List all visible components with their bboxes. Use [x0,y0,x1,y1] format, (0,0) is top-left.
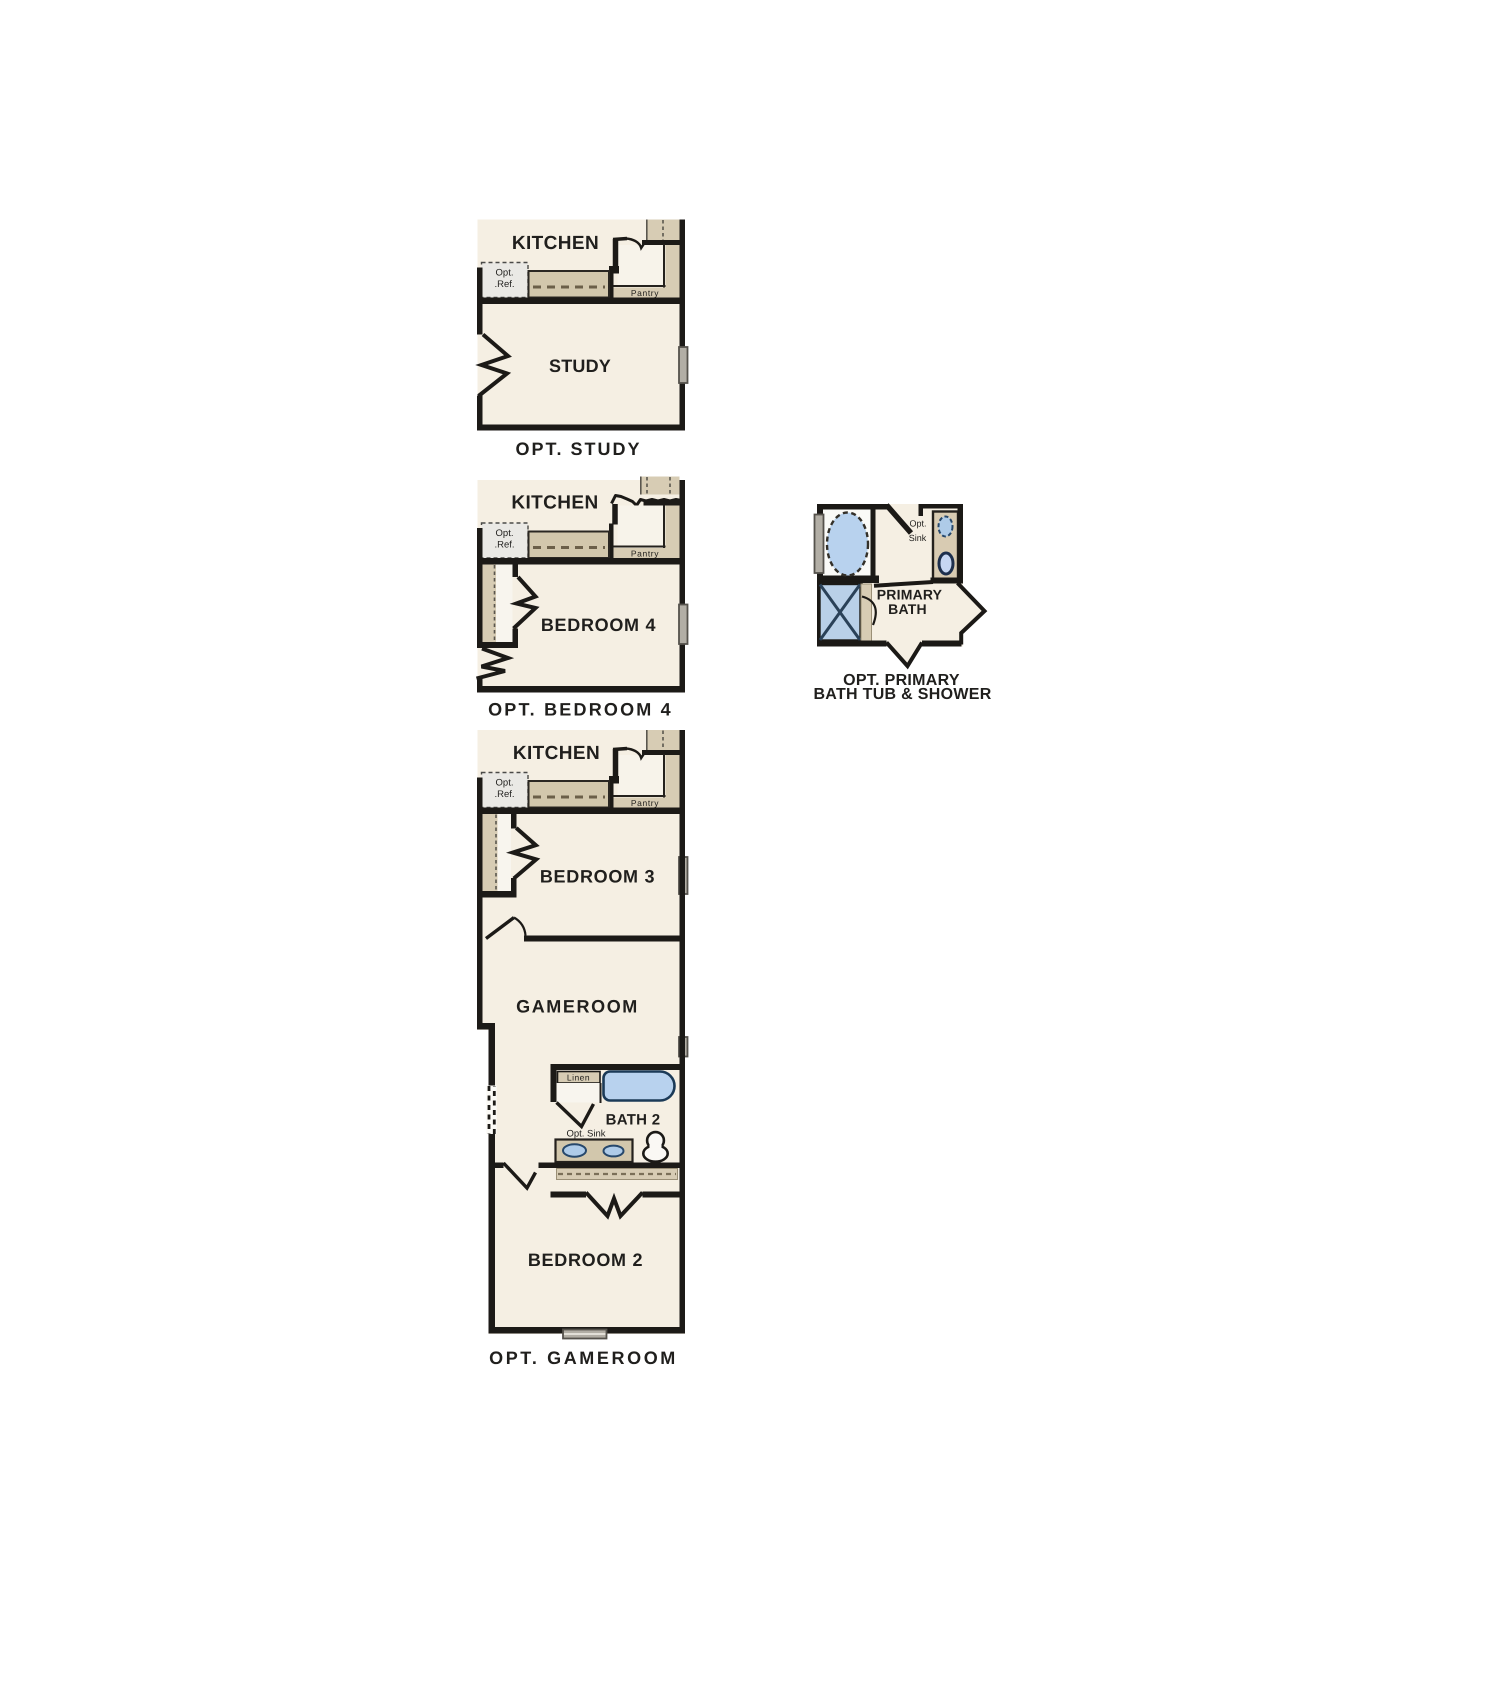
svg-text:BATH TUB & SHOWER: BATH TUB & SHOWER [813,686,991,703]
svg-text:KITCHEN: KITCHEN [511,493,598,514]
svg-text:Opt. Sink: Opt. Sink [566,1128,605,1139]
svg-text:.Ref.: .Ref. [494,279,514,290]
svg-text:KITCHEN: KITCHEN [513,743,600,764]
svg-text:BEDROOM 2: BEDROOM 2 [528,1250,643,1270]
svg-text:BATH: BATH [888,601,927,617]
svg-text:.Ref.: .Ref. [494,789,514,800]
svg-text:OPT. STUDY: OPT. STUDY [515,439,641,459]
svg-text:BEDROOM 3: BEDROOM 3 [540,867,655,887]
svg-text:OPT. GAMEROOM: OPT. GAMEROOM [489,1348,678,1368]
svg-text:Opt.: Opt. [496,528,514,539]
svg-text:GAMEROOM: GAMEROOM [516,997,639,1017]
svg-text:KITCHEN: KITCHEN [512,233,599,254]
svg-text:STUDY: STUDY [549,356,611,376]
svg-text:BATH 2: BATH 2 [606,1112,661,1129]
svg-text:Pantry: Pantry [631,288,659,298]
svg-text:Sink: Sink [909,533,927,543]
svg-text:Opt.: Opt. [496,778,514,789]
svg-text:Opt.: Opt. [909,519,926,529]
svg-text:Pantry: Pantry [631,798,659,808]
svg-text:BEDROOM 4: BEDROOM 4 [541,615,656,635]
svg-text:Pantry: Pantry [631,549,659,559]
svg-text:Linen: Linen [567,1073,590,1083]
svg-text:.Ref.: .Ref. [494,540,514,551]
svg-text:Opt.: Opt. [496,268,514,279]
svg-text:OPT. BEDROOM 4: OPT. BEDROOM 4 [488,700,673,720]
